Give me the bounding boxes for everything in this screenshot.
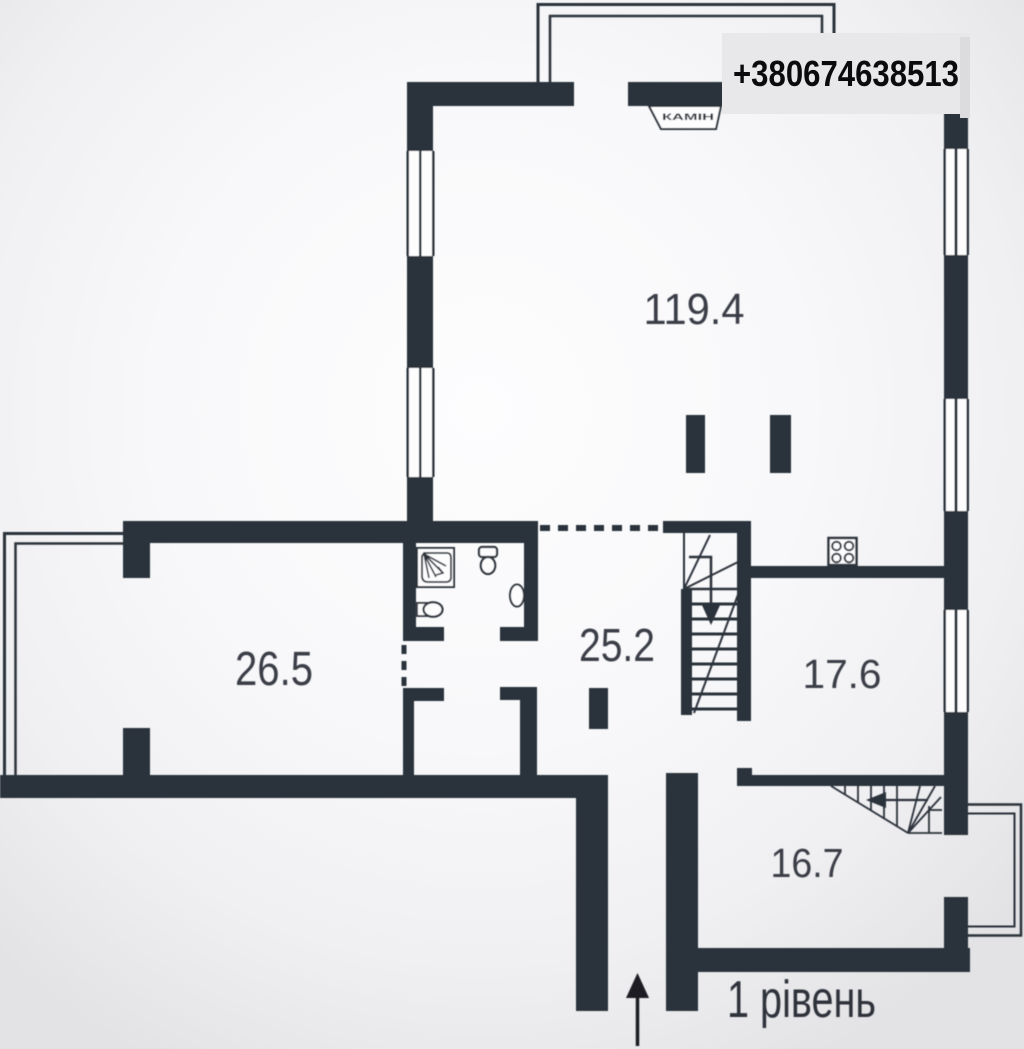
svg-text:119.4: 119.4 [644, 285, 745, 334]
svg-text:26.5: 26.5 [235, 643, 313, 696]
svg-text:1 рівень: 1 рівень [727, 971, 876, 1029]
svg-text:КАМІН: КАМІН [662, 112, 714, 123]
svg-text:16.7: 16.7 [771, 840, 844, 886]
svg-text:25.2: 25.2 [579, 619, 655, 671]
svg-text:17.6: 17.6 [803, 651, 882, 697]
svg-text:+380674638513: +380674638513 [733, 53, 959, 94]
